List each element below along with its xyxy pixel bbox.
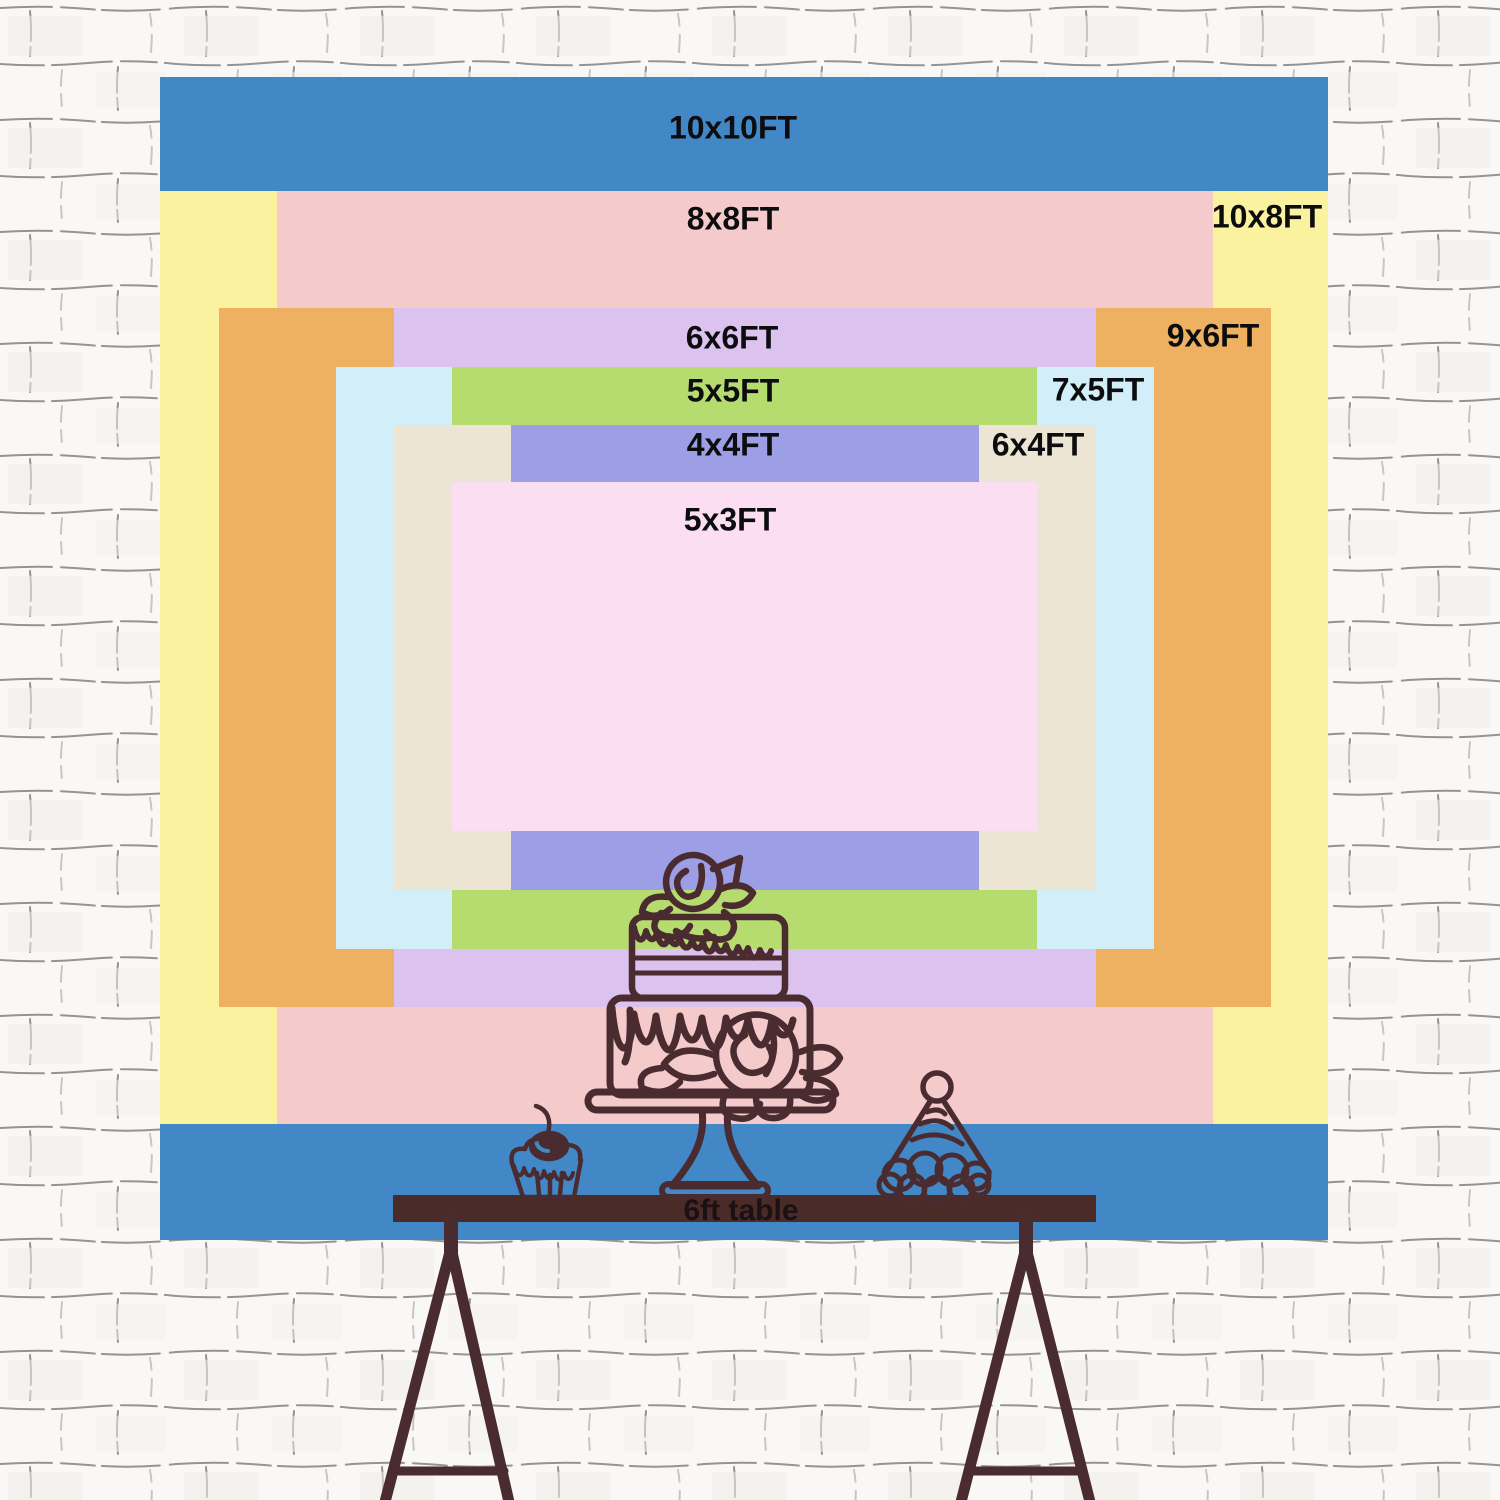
size-label-5x3ft: 5x3FT — [684, 502, 776, 539]
backdrop-size-chart: 10x10FT 10x8FT 8x8FT 9x6FT 6x6FT 7x5FT 5… — [0, 0, 1500, 1500]
trestle-leg-right-icon — [961, 1218, 1090, 1500]
size-label-8x8ft: 8x8FT — [687, 201, 779, 238]
trestle-leg-left-icon — [385, 1218, 509, 1500]
size-label-6x6ft: 6x6FT — [686, 320, 778, 357]
cupcake-icon — [512, 1106, 581, 1197]
size-label-10x10ft: 10x10FT — [669, 110, 797, 147]
table-size-label: 6ft table — [683, 1194, 798, 1228]
size-label-5x5ft: 5x5FT — [687, 373, 779, 410]
size-label-9x6ft: 9x6FT — [1167, 318, 1259, 355]
size-label-6x4ft: 6x4FT — [992, 427, 1084, 464]
party-hat-icon — [879, 1073, 989, 1203]
size-label-7x5ft: 7x5FT — [1052, 372, 1144, 409]
cake-icon — [588, 855, 840, 1197]
size-label-10x8ft: 10x8FT — [1212, 199, 1322, 236]
size-label-4x4ft: 4x4FT — [687, 427, 779, 464]
